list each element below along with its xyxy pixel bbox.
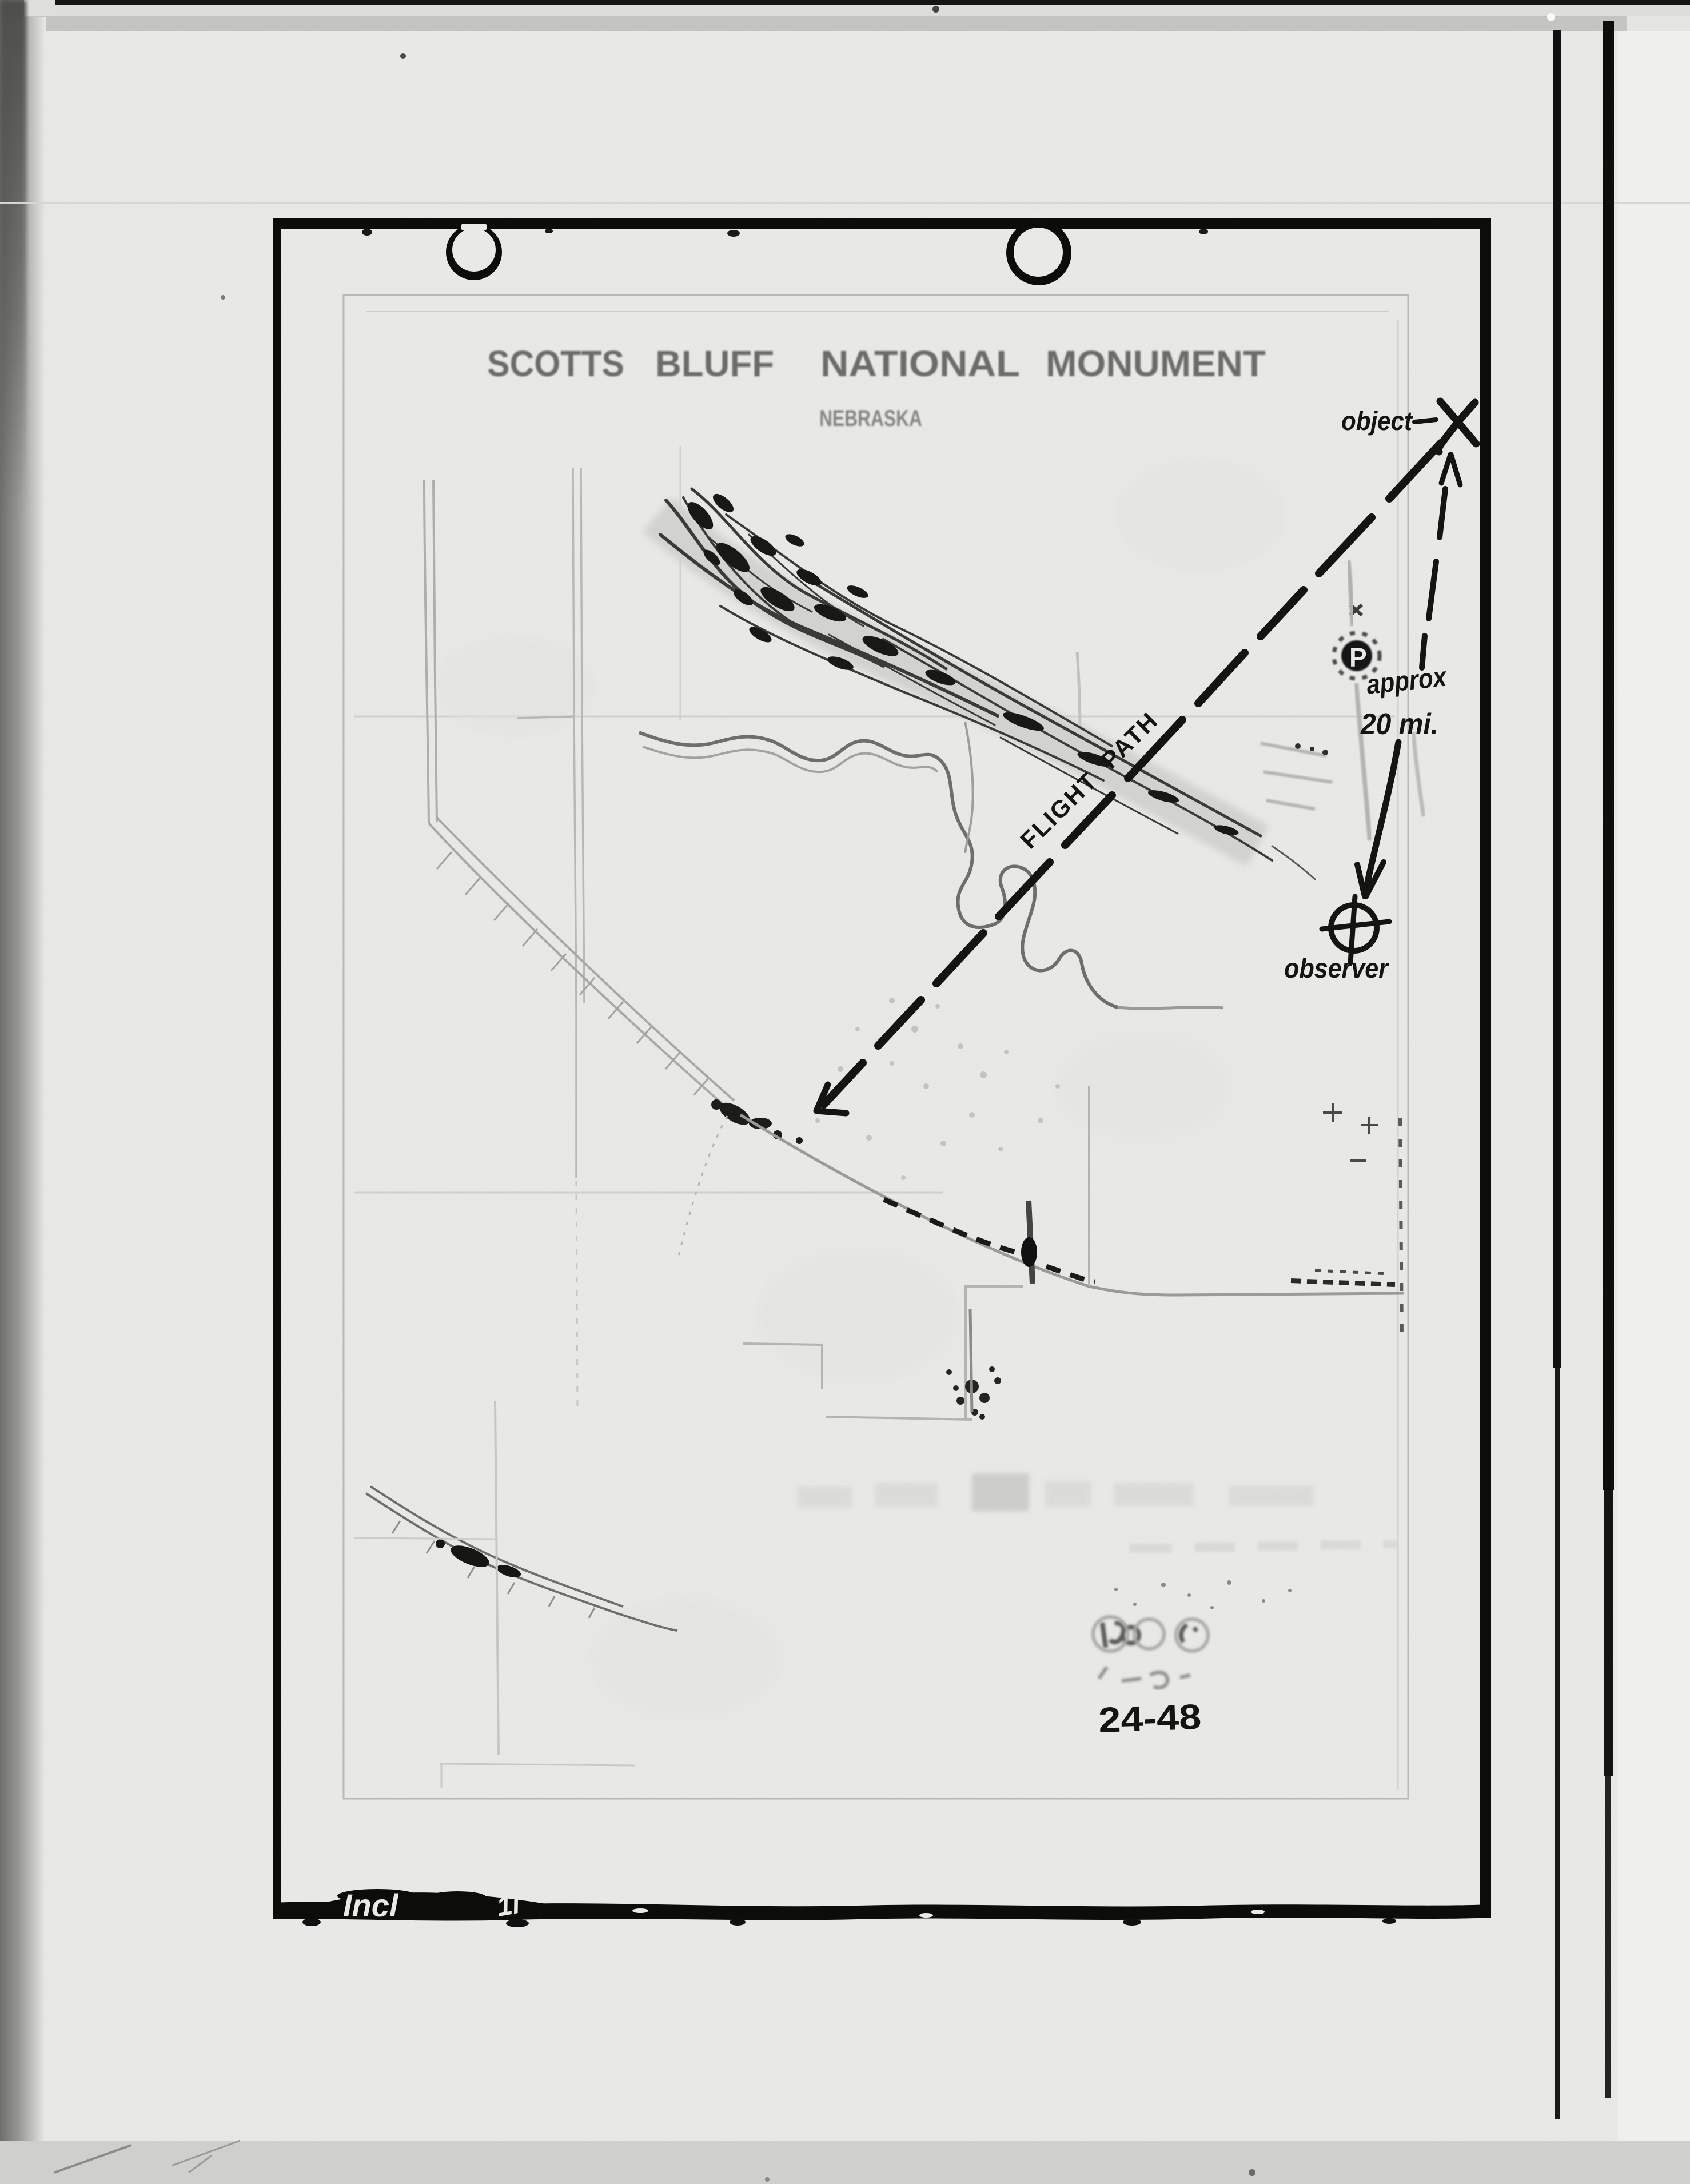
svg-text:24-48: 24-48 <box>1098 1697 1202 1740</box>
svg-text:MONUMENT: MONUMENT <box>1046 343 1266 384</box>
svg-text:observer: observer <box>1284 954 1389 984</box>
svg-text:BLUFF: BLUFF <box>655 343 774 384</box>
svg-text:20 mi.: 20 mi. <box>1360 708 1438 741</box>
svg-text:Incl: Incl <box>343 1887 399 1923</box>
svg-text:object: object <box>1341 406 1413 436</box>
svg-text:SCOTTS: SCOTTS <box>487 343 624 384</box>
svg-text:P: P <box>1349 643 1367 672</box>
svg-text:NEBRASKA: NEBRASKA <box>819 406 922 431</box>
svg-text:NATIONAL: NATIONAL <box>820 343 1020 384</box>
